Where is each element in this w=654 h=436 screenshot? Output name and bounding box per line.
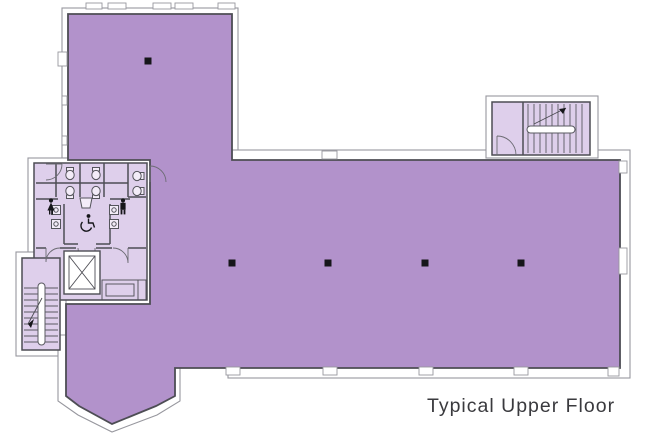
sink-fixture — [110, 206, 119, 215]
column-marker — [422, 260, 429, 267]
toilet-fixture — [66, 186, 74, 198]
sink-fixture — [110, 220, 119, 229]
toilet-fixture — [133, 186, 144, 195]
column-marker — [145, 58, 152, 65]
open-plan-floor — [66, 14, 620, 424]
column-marker — [325, 260, 332, 267]
toilet-fixture — [133, 171, 144, 180]
floor-plan-page: Typical Upper Floor — [0, 0, 654, 436]
sink-fixture — [52, 220, 61, 229]
toilet-fixture — [92, 186, 100, 198]
fountain-fixture — [80, 198, 92, 208]
toilet-fixture — [92, 168, 100, 180]
elevator-shaft — [64, 251, 100, 294]
fountain-fixture — [80, 198, 92, 208]
column-marker — [229, 260, 236, 267]
column-marker — [518, 260, 525, 267]
toilet-fixture — [66, 168, 74, 180]
floor-plan-drawing: Typical Upper Floor — [0, 0, 654, 436]
floor-label: Typical Upper Floor — [427, 395, 615, 417]
